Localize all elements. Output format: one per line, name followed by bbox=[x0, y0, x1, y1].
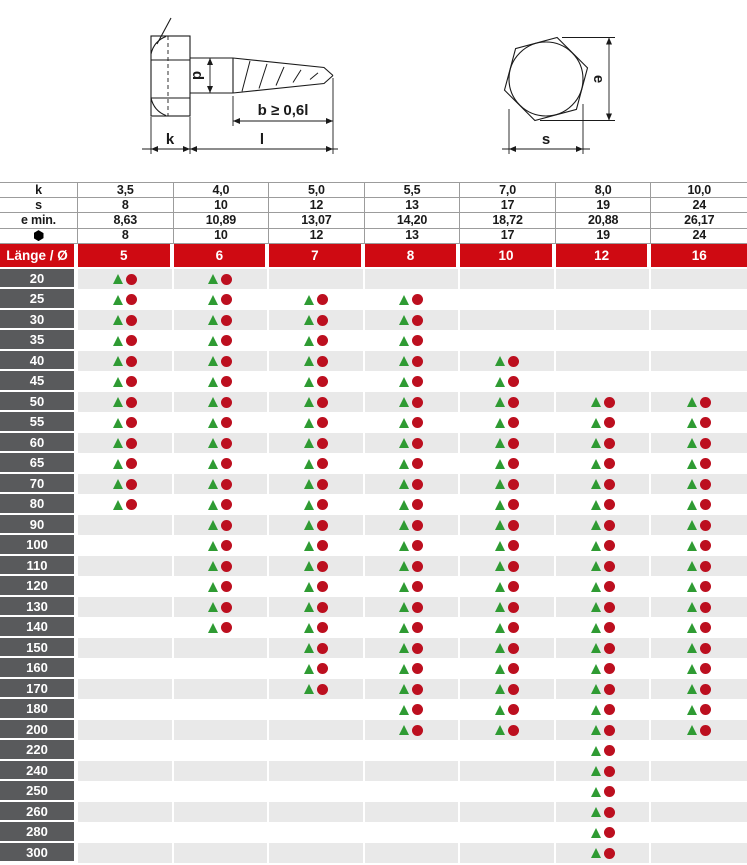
circle-marker bbox=[508, 376, 519, 387]
circle-marker bbox=[604, 725, 615, 736]
availability-cell bbox=[556, 392, 652, 413]
spec-value: 18,72 bbox=[460, 213, 556, 227]
availability-cell bbox=[651, 433, 747, 454]
table-row: 120 bbox=[0, 576, 747, 597]
table-row: 280 bbox=[0, 822, 747, 843]
table-row: 60 bbox=[0, 433, 747, 454]
availability-cell bbox=[269, 822, 365, 843]
screw-catalog-page: d b ≥ 0,6l k l bbox=[0, 0, 747, 865]
availability-cell bbox=[174, 576, 270, 597]
availability-cell bbox=[269, 617, 365, 638]
availability-cell bbox=[269, 597, 365, 618]
availability-cell bbox=[651, 515, 747, 536]
diameter-value: 12 bbox=[556, 244, 652, 267]
circle-marker bbox=[221, 458, 232, 469]
triangle-marker bbox=[208, 582, 218, 592]
spec-value: 3,5 bbox=[78, 183, 174, 197]
availability-cell bbox=[174, 515, 270, 536]
availability-cell bbox=[78, 351, 174, 372]
circle-marker bbox=[412, 315, 423, 326]
triangle-marker bbox=[208, 377, 218, 387]
availability-cell bbox=[269, 699, 365, 720]
availability-cell bbox=[365, 843, 461, 864]
availability-cell bbox=[78, 556, 174, 577]
availability-cell bbox=[460, 720, 556, 741]
circle-marker bbox=[604, 704, 615, 715]
availability-cell bbox=[365, 433, 461, 454]
triangle-marker bbox=[591, 561, 601, 571]
availability-cell bbox=[651, 351, 747, 372]
row-length-label: 45 bbox=[0, 371, 78, 392]
row-length-label: 70 bbox=[0, 474, 78, 495]
screw-side-view-drawing: d b ≥ 0,6l k l bbox=[126, 4, 388, 176]
availability-cell bbox=[365, 556, 461, 577]
triangle-marker bbox=[687, 705, 697, 715]
triangle-marker bbox=[399, 295, 409, 305]
circle-marker bbox=[317, 561, 328, 572]
table-row: 180 bbox=[0, 699, 747, 720]
availability-cell bbox=[651, 556, 747, 577]
circle-marker bbox=[508, 561, 519, 572]
availability-cell bbox=[78, 638, 174, 659]
availability-cell bbox=[651, 740, 747, 761]
row-length-label: 260 bbox=[0, 802, 78, 823]
table-row: 140 bbox=[0, 617, 747, 638]
availability-cell bbox=[460, 494, 556, 515]
triangle-marker bbox=[591, 418, 601, 428]
triangle-marker bbox=[399, 479, 409, 489]
circle-marker bbox=[126, 438, 137, 449]
circle-marker bbox=[221, 622, 232, 633]
triangle-marker bbox=[399, 705, 409, 715]
row-length-label: 200 bbox=[0, 720, 78, 741]
triangle-marker bbox=[591, 746, 601, 756]
availability-cell bbox=[269, 412, 365, 433]
availability-cell bbox=[365, 802, 461, 823]
availability-cell bbox=[651, 494, 747, 515]
availability-cell bbox=[365, 310, 461, 331]
row-length-label: 50 bbox=[0, 392, 78, 413]
availability-cell bbox=[269, 474, 365, 495]
circle-marker bbox=[317, 684, 328, 695]
triangle-marker bbox=[687, 582, 697, 592]
availability-cell bbox=[651, 269, 747, 290]
triangle-marker bbox=[113, 397, 123, 407]
availability-cell bbox=[269, 269, 365, 290]
circle-marker bbox=[221, 294, 232, 305]
triangle-marker bbox=[304, 664, 314, 674]
availability-cell bbox=[460, 412, 556, 433]
availability-cell bbox=[460, 638, 556, 659]
circle-marker bbox=[221, 356, 232, 367]
availability-cell bbox=[365, 699, 461, 720]
triangle-marker bbox=[208, 623, 218, 633]
availability-cell bbox=[174, 351, 270, 372]
availability-cell bbox=[269, 289, 365, 310]
circle-marker bbox=[126, 335, 137, 346]
circle-marker bbox=[412, 479, 423, 490]
table-row: 70 bbox=[0, 474, 747, 495]
row-length-label: 220 bbox=[0, 740, 78, 761]
triangle-marker bbox=[399, 725, 409, 735]
circle-marker bbox=[412, 622, 423, 633]
circle-marker bbox=[604, 602, 615, 613]
table-row: 150 bbox=[0, 638, 747, 659]
triangle-marker bbox=[304, 541, 314, 551]
availability-cell bbox=[174, 843, 270, 864]
circle-marker bbox=[221, 602, 232, 613]
triangle-marker bbox=[399, 541, 409, 551]
availability-cell bbox=[365, 515, 461, 536]
availability-cell bbox=[365, 638, 461, 659]
availability-cell bbox=[651, 638, 747, 659]
row-length-label: 280 bbox=[0, 822, 78, 843]
availability-cell bbox=[556, 371, 652, 392]
availability-cell bbox=[556, 515, 652, 536]
spec-value: 13,07 bbox=[269, 213, 365, 227]
availability-cell bbox=[460, 679, 556, 700]
availability-cell bbox=[556, 740, 652, 761]
table-row: 25 bbox=[0, 289, 747, 310]
triangle-marker bbox=[304, 377, 314, 387]
spec-value: 5,5 bbox=[365, 183, 461, 197]
row-length-label: 240 bbox=[0, 761, 78, 782]
spec-row: 8101213171924 bbox=[0, 228, 747, 243]
triangle-marker bbox=[304, 520, 314, 530]
availability-cell bbox=[556, 802, 652, 823]
spec-value: 5,0 bbox=[269, 183, 365, 197]
availability-cell bbox=[269, 330, 365, 351]
circle-marker bbox=[700, 704, 711, 715]
triangle-marker bbox=[304, 561, 314, 571]
availability-cell bbox=[556, 433, 652, 454]
circle-marker bbox=[221, 274, 232, 285]
triangle-marker bbox=[591, 664, 601, 674]
triangle-marker bbox=[399, 561, 409, 571]
triangle-marker bbox=[399, 315, 409, 325]
triangle-marker bbox=[591, 725, 601, 735]
triangle-marker bbox=[304, 336, 314, 346]
triangle-marker bbox=[399, 643, 409, 653]
availability-cell bbox=[174, 474, 270, 495]
row-length-label: 25 bbox=[0, 289, 78, 310]
availability-cell bbox=[269, 761, 365, 782]
triangle-marker bbox=[304, 356, 314, 366]
availability-cell bbox=[78, 269, 174, 290]
circle-marker bbox=[126, 458, 137, 469]
row-length-label: 170 bbox=[0, 679, 78, 700]
diameter-header-row: Länge / Ø5678101216 bbox=[0, 244, 747, 267]
availability-cell bbox=[269, 453, 365, 474]
triangle-marker bbox=[208, 295, 218, 305]
circle-marker bbox=[508, 581, 519, 592]
table-row: 20 bbox=[0, 269, 747, 290]
availability-cell bbox=[556, 658, 652, 679]
availability-cell bbox=[269, 740, 365, 761]
spec-row: k3,54,05,05,57,08,010,0 bbox=[0, 183, 747, 197]
row-length-label: 300 bbox=[0, 843, 78, 864]
circle-marker bbox=[317, 356, 328, 367]
triangle-marker bbox=[304, 479, 314, 489]
availability-cell bbox=[174, 371, 270, 392]
circle-marker bbox=[317, 663, 328, 674]
hex-head-top-view-drawing: e s bbox=[474, 4, 658, 176]
triangle-marker bbox=[208, 459, 218, 469]
circle-marker bbox=[412, 725, 423, 736]
circle-marker bbox=[317, 335, 328, 346]
technical-drawings: d b ≥ 0,6l k l bbox=[0, 0, 747, 182]
circle-marker bbox=[604, 827, 615, 838]
triangle-marker bbox=[687, 459, 697, 469]
circle-marker bbox=[317, 376, 328, 387]
row-length-label: 20 bbox=[0, 269, 78, 290]
availability-cell bbox=[651, 535, 747, 556]
circle-marker bbox=[604, 684, 615, 695]
triangle-marker bbox=[495, 643, 505, 653]
availability-cell bbox=[269, 535, 365, 556]
spec-value: 24 bbox=[651, 229, 747, 243]
availability-cell bbox=[460, 371, 556, 392]
spec-value: 10 bbox=[174, 198, 270, 212]
circle-marker bbox=[508, 643, 519, 654]
availability-cell bbox=[78, 412, 174, 433]
availability-cell bbox=[269, 515, 365, 536]
availability-cell bbox=[78, 597, 174, 618]
triangle-marker bbox=[687, 684, 697, 694]
spec-value: 17 bbox=[460, 229, 556, 243]
availability-cell bbox=[460, 330, 556, 351]
triangle-marker bbox=[208, 520, 218, 530]
availability-cell bbox=[556, 822, 652, 843]
table-row: 50 bbox=[0, 392, 747, 413]
circle-marker bbox=[604, 417, 615, 428]
availability-cell bbox=[174, 412, 270, 433]
availability-cell bbox=[174, 310, 270, 331]
circle-marker bbox=[221, 315, 232, 326]
availability-cell bbox=[78, 474, 174, 495]
availability-cell bbox=[269, 494, 365, 515]
circle-marker bbox=[221, 335, 232, 346]
triangle-marker bbox=[399, 582, 409, 592]
table-row: 90 bbox=[0, 515, 747, 536]
circle-marker bbox=[700, 499, 711, 510]
availability-cell bbox=[460, 535, 556, 556]
circle-marker bbox=[508, 663, 519, 674]
triangle-marker bbox=[208, 541, 218, 551]
circle-marker bbox=[412, 397, 423, 408]
triangle-marker bbox=[208, 356, 218, 366]
circle-marker bbox=[126, 294, 137, 305]
availability-cell bbox=[651, 658, 747, 679]
triangle-marker bbox=[113, 295, 123, 305]
d-dimension-label: d bbox=[189, 71, 206, 80]
spec-value: 13 bbox=[365, 229, 461, 243]
availability-cell bbox=[651, 392, 747, 413]
triangle-marker bbox=[687, 643, 697, 653]
circle-marker bbox=[317, 520, 328, 531]
spec-value: 10,89 bbox=[174, 213, 270, 227]
availability-cell bbox=[78, 515, 174, 536]
availability-cell bbox=[651, 289, 747, 310]
circle-marker bbox=[317, 438, 328, 449]
thread-outline-bottom bbox=[233, 76, 333, 94]
circle-marker bbox=[412, 704, 423, 715]
triangle-marker bbox=[113, 459, 123, 469]
triangle-marker bbox=[687, 664, 697, 674]
triangle-marker bbox=[687, 602, 697, 612]
row-length-label: 55 bbox=[0, 412, 78, 433]
table-row: 220 bbox=[0, 740, 747, 761]
circle-marker bbox=[508, 704, 519, 715]
spec-row-label: k bbox=[0, 183, 78, 197]
availability-cell bbox=[174, 740, 270, 761]
circle-marker bbox=[700, 643, 711, 654]
spec-row: s8101213171924 bbox=[0, 197, 747, 212]
triangle-marker bbox=[591, 520, 601, 530]
k-dimension-label: k bbox=[166, 131, 175, 148]
spec-value: 17 bbox=[460, 198, 556, 212]
availability-cell bbox=[78, 720, 174, 741]
availability-cell bbox=[174, 330, 270, 351]
availability-cell bbox=[78, 658, 174, 679]
triangle-marker bbox=[495, 602, 505, 612]
circle-marker bbox=[317, 315, 328, 326]
circle-marker bbox=[317, 643, 328, 654]
circle-marker bbox=[317, 294, 328, 305]
row-length-label: 65 bbox=[0, 453, 78, 474]
availability-cell bbox=[78, 843, 174, 864]
availability-cell bbox=[365, 597, 461, 618]
triangle-marker bbox=[591, 766, 601, 776]
triangle-marker bbox=[495, 664, 505, 674]
availability-cell bbox=[556, 699, 652, 720]
spec-value: 8,0 bbox=[556, 183, 652, 197]
availability-cell bbox=[365, 761, 461, 782]
triangle-marker bbox=[495, 397, 505, 407]
circle-marker bbox=[700, 663, 711, 674]
circle-marker bbox=[604, 397, 615, 408]
availability-cell bbox=[651, 474, 747, 495]
availability-cell bbox=[651, 822, 747, 843]
circle-marker bbox=[508, 684, 519, 695]
spec-value: 12 bbox=[269, 198, 365, 212]
triangle-marker bbox=[687, 520, 697, 530]
availability-cell bbox=[174, 822, 270, 843]
availability-cell bbox=[556, 269, 652, 290]
spec-value: 12 bbox=[269, 229, 365, 243]
triangle-marker bbox=[208, 336, 218, 346]
circle-marker bbox=[317, 602, 328, 613]
availability-cell bbox=[269, 843, 365, 864]
triangle-marker bbox=[208, 602, 218, 612]
circle-marker bbox=[412, 499, 423, 510]
availability-cell bbox=[269, 371, 365, 392]
triangle-marker bbox=[591, 459, 601, 469]
triangle-marker bbox=[399, 664, 409, 674]
row-length-label: 120 bbox=[0, 576, 78, 597]
triangle-marker bbox=[591, 705, 601, 715]
circle-marker bbox=[317, 479, 328, 490]
circle-marker bbox=[604, 561, 615, 572]
availability-cell bbox=[460, 433, 556, 454]
availability-cell bbox=[78, 679, 174, 700]
spec-value: 19 bbox=[556, 229, 652, 243]
availability-cell bbox=[651, 761, 747, 782]
triangle-marker bbox=[495, 520, 505, 530]
availability-cell bbox=[174, 494, 270, 515]
availability-cell bbox=[269, 802, 365, 823]
circle-marker bbox=[604, 581, 615, 592]
triangle-marker bbox=[304, 315, 314, 325]
availability-cell bbox=[651, 371, 747, 392]
triangle-marker bbox=[591, 807, 601, 817]
row-length-label: 80 bbox=[0, 494, 78, 515]
circle-marker bbox=[508, 356, 519, 367]
availability-cell bbox=[651, 699, 747, 720]
availability-cell bbox=[460, 474, 556, 495]
circle-marker bbox=[604, 622, 615, 633]
triangle-marker bbox=[495, 541, 505, 551]
availability-cell bbox=[651, 597, 747, 618]
spec-value: 8 bbox=[78, 198, 174, 212]
head-dimensions-table: k3,54,05,05,57,08,010,0s8101213171924e m… bbox=[0, 182, 747, 244]
availability-cell bbox=[78, 699, 174, 720]
diameter-row-label: Länge / Ø bbox=[0, 244, 78, 267]
availability-cell bbox=[269, 433, 365, 454]
table-row: 240 bbox=[0, 761, 747, 782]
availability-cell bbox=[460, 617, 556, 638]
circle-marker bbox=[508, 499, 519, 510]
table-row: 300 bbox=[0, 843, 747, 864]
availability-cell bbox=[651, 330, 747, 351]
circle-marker bbox=[604, 540, 615, 551]
triangle-marker bbox=[687, 725, 697, 735]
availability-cell bbox=[365, 679, 461, 700]
triangle-marker bbox=[113, 377, 123, 387]
triangle-marker bbox=[304, 684, 314, 694]
triangle-marker bbox=[399, 418, 409, 428]
availability-cell bbox=[174, 433, 270, 454]
availability-cell bbox=[269, 720, 365, 741]
circle-marker bbox=[221, 581, 232, 592]
l-dimension-label: l bbox=[260, 131, 264, 148]
availability-cell bbox=[556, 781, 652, 802]
triangle-marker bbox=[495, 438, 505, 448]
b-dimension-label: b ≥ 0,6l bbox=[258, 102, 309, 119]
circle-marker bbox=[126, 397, 137, 408]
circle-marker bbox=[604, 786, 615, 797]
availability-cell bbox=[174, 802, 270, 823]
table-row: 55 bbox=[0, 412, 747, 433]
circle-marker bbox=[412, 335, 423, 346]
triangle-marker bbox=[687, 541, 697, 551]
circle-marker bbox=[604, 520, 615, 531]
availability-cell bbox=[174, 597, 270, 618]
availability-cell bbox=[365, 535, 461, 556]
availability-cell bbox=[651, 720, 747, 741]
circle-marker bbox=[700, 397, 711, 408]
triangle-marker bbox=[591, 397, 601, 407]
availability-cell bbox=[651, 802, 747, 823]
spec-value: 7,0 bbox=[460, 183, 556, 197]
triangle-marker bbox=[495, 356, 505, 366]
triangle-marker bbox=[208, 438, 218, 448]
triangle-marker bbox=[113, 418, 123, 428]
availability-cell bbox=[460, 802, 556, 823]
availability-cell bbox=[556, 351, 652, 372]
availability-cell bbox=[556, 576, 652, 597]
availability-cell bbox=[269, 351, 365, 372]
